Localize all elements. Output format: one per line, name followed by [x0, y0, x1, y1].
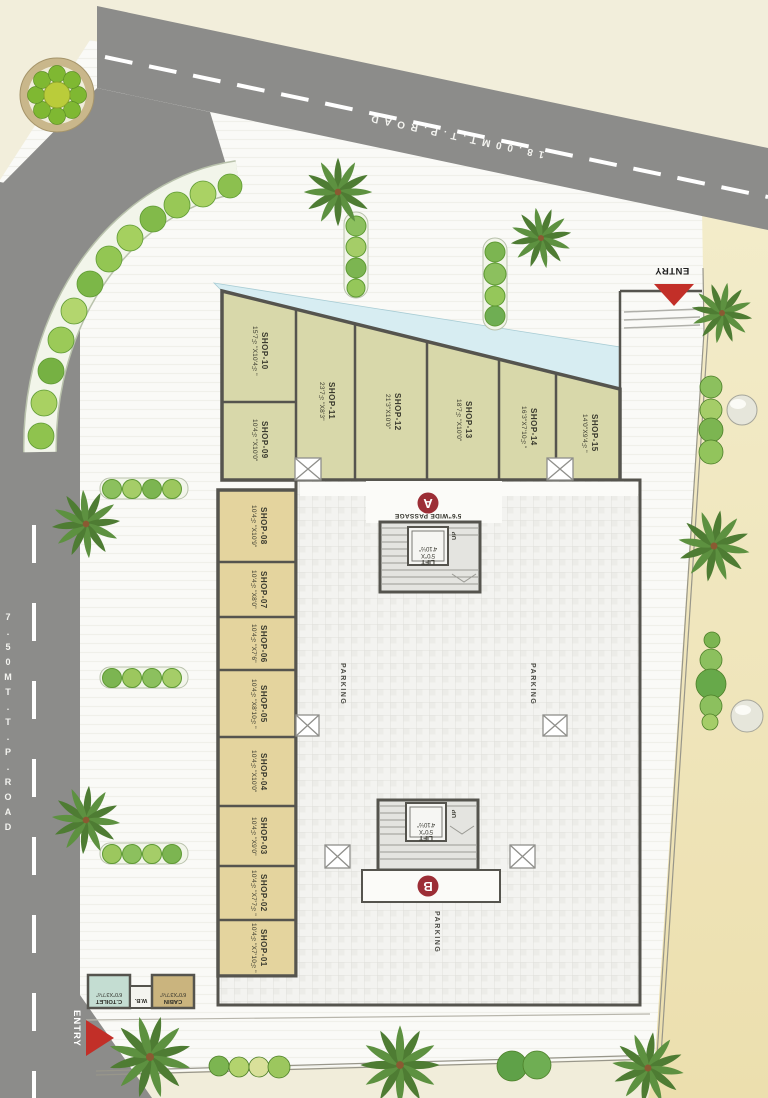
wb-room: [130, 986, 152, 1008]
column-icon: [325, 845, 350, 868]
column-icon: [295, 458, 321, 480]
block-a-badge: [418, 493, 439, 514]
column-icon: [296, 715, 319, 736]
hedge-strip: [100, 843, 188, 864]
stair-block-b: [362, 800, 500, 902]
column-icon: [510, 845, 535, 868]
hedge-strip: [100, 478, 188, 499]
site-plan-drawing: [0, 0, 768, 1098]
hedge-strip: [100, 667, 188, 688]
lift-a: [408, 527, 448, 565]
planter-strip: [483, 238, 507, 330]
planter-strip: [344, 212, 368, 298]
lift-b: [406, 803, 446, 841]
round-planter-icon: [20, 58, 94, 132]
block-b-badge: [418, 876, 439, 897]
column-icon: [547, 458, 573, 480]
site-plan: 18.00MT.T.P.ROAD 7.50MT.T.P.ROAD ENTRY E…: [0, 0, 768, 1098]
cabin-room: [152, 975, 194, 1008]
left-shop-block: [218, 490, 296, 976]
toilet-room: [88, 975, 130, 1008]
column-icon: [543, 715, 567, 736]
